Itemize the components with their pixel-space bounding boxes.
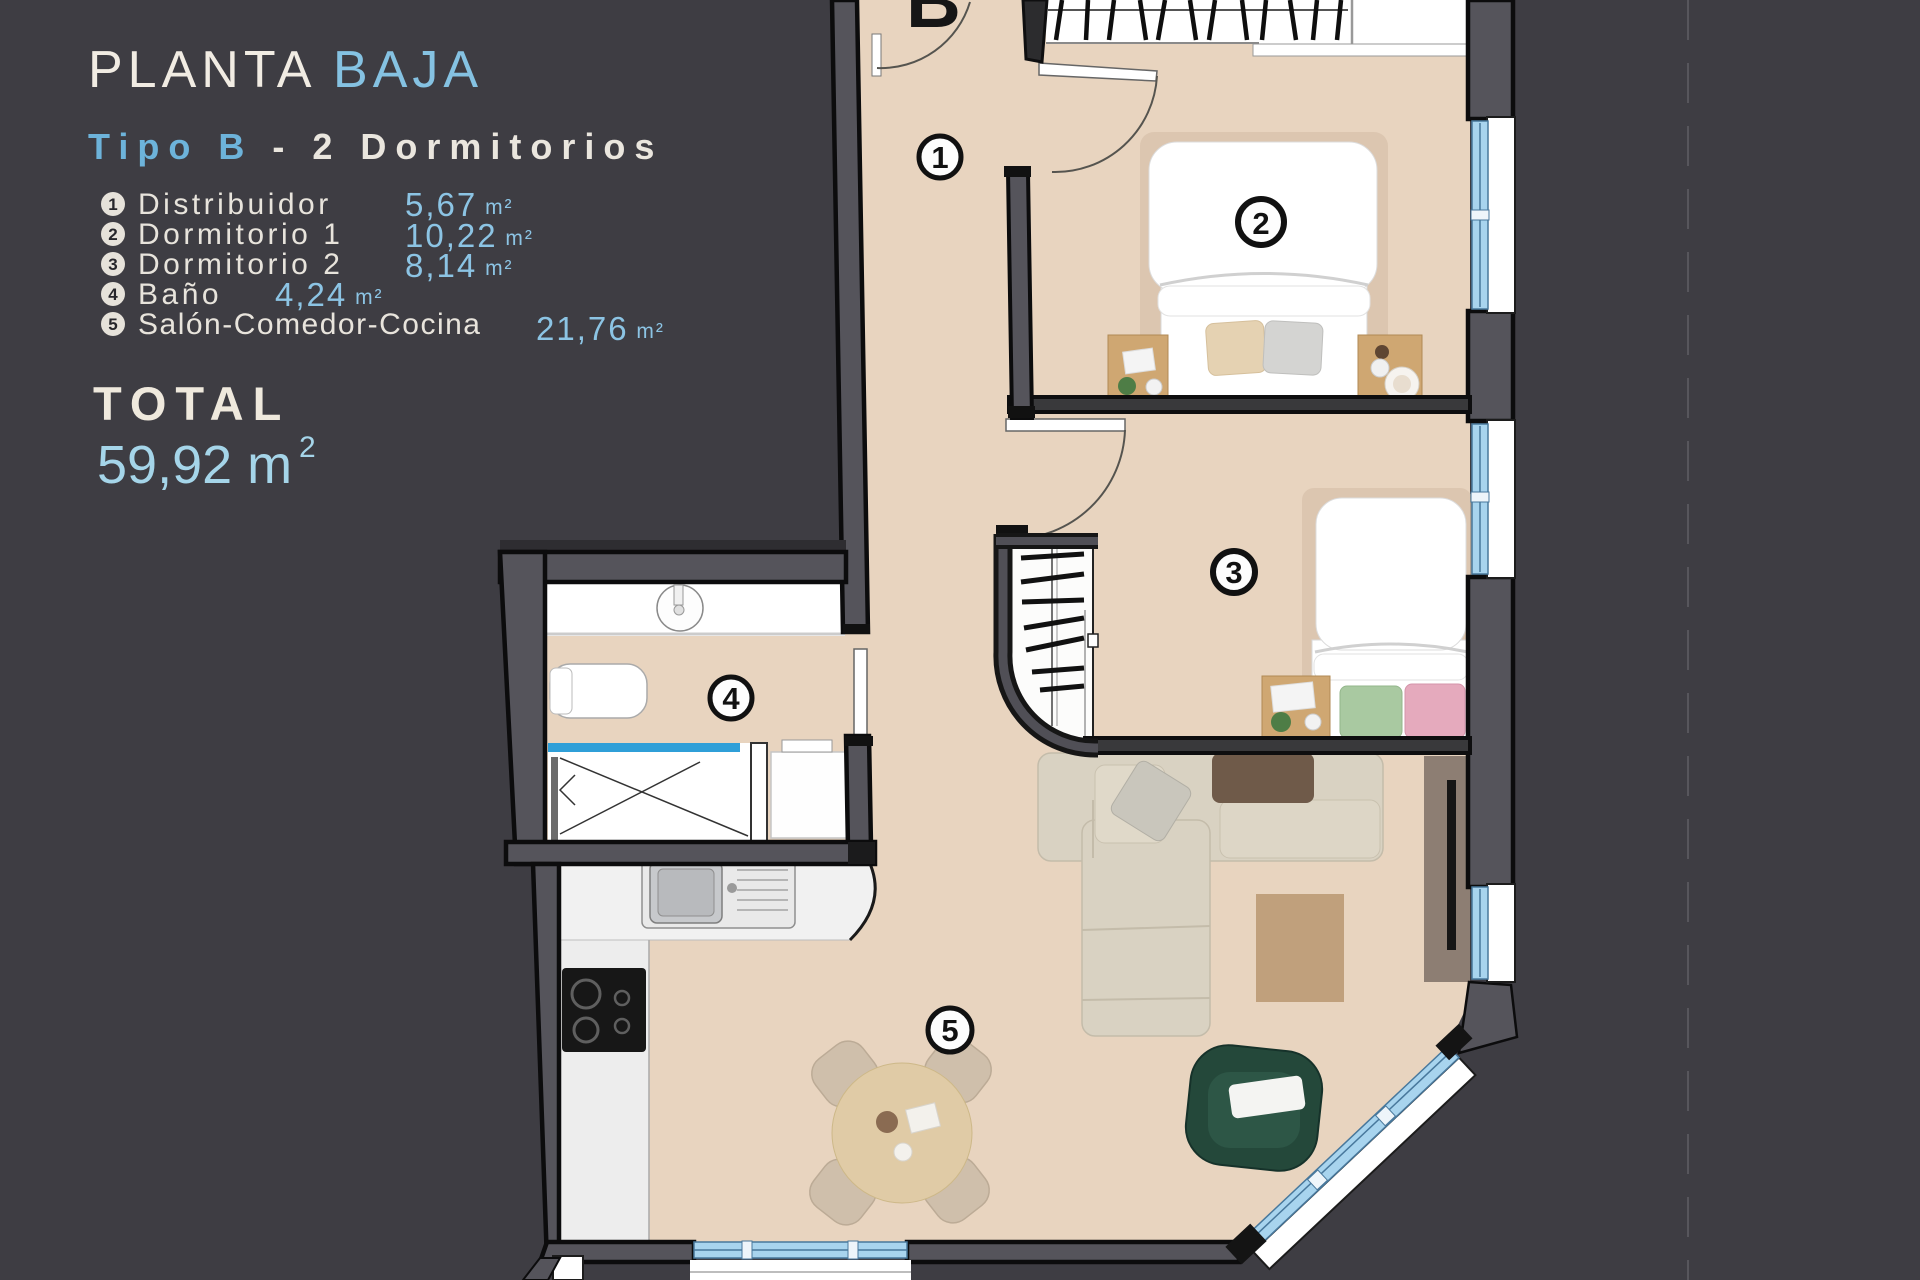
svg-text:4: 4 <box>722 681 740 716</box>
svg-text:59,92 m: 59,92 m <box>97 435 292 495</box>
svg-text:4: 4 <box>108 285 118 304</box>
svg-text:2: 2 <box>108 225 117 244</box>
svg-text:3: 3 <box>1225 555 1242 590</box>
svg-text:1: 1 <box>931 140 948 175</box>
svg-text:5: 5 <box>941 1013 958 1048</box>
svg-text:Dormitorio 1: Dormitorio 1 <box>138 218 343 251</box>
svg-text:B: B <box>906 0 961 44</box>
svg-text:2: 2 <box>299 431 316 464</box>
svg-text:PLANTA BAJA: PLANTA BAJA <box>88 41 483 99</box>
svg-text:TOTAL: TOTAL <box>93 377 290 430</box>
svg-text:2: 2 <box>1252 206 1269 241</box>
svg-text:1: 1 <box>108 195 117 214</box>
svg-text:3: 3 <box>108 255 117 274</box>
svg-text:Baño: Baño <box>138 278 222 311</box>
svg-text:Tipo B - 2 Dormitorios: Tipo B - 2 Dormitorios <box>88 126 663 167</box>
svg-text:5: 5 <box>108 315 117 334</box>
svg-text:Distribuidor: Distribuidor <box>138 188 332 221</box>
